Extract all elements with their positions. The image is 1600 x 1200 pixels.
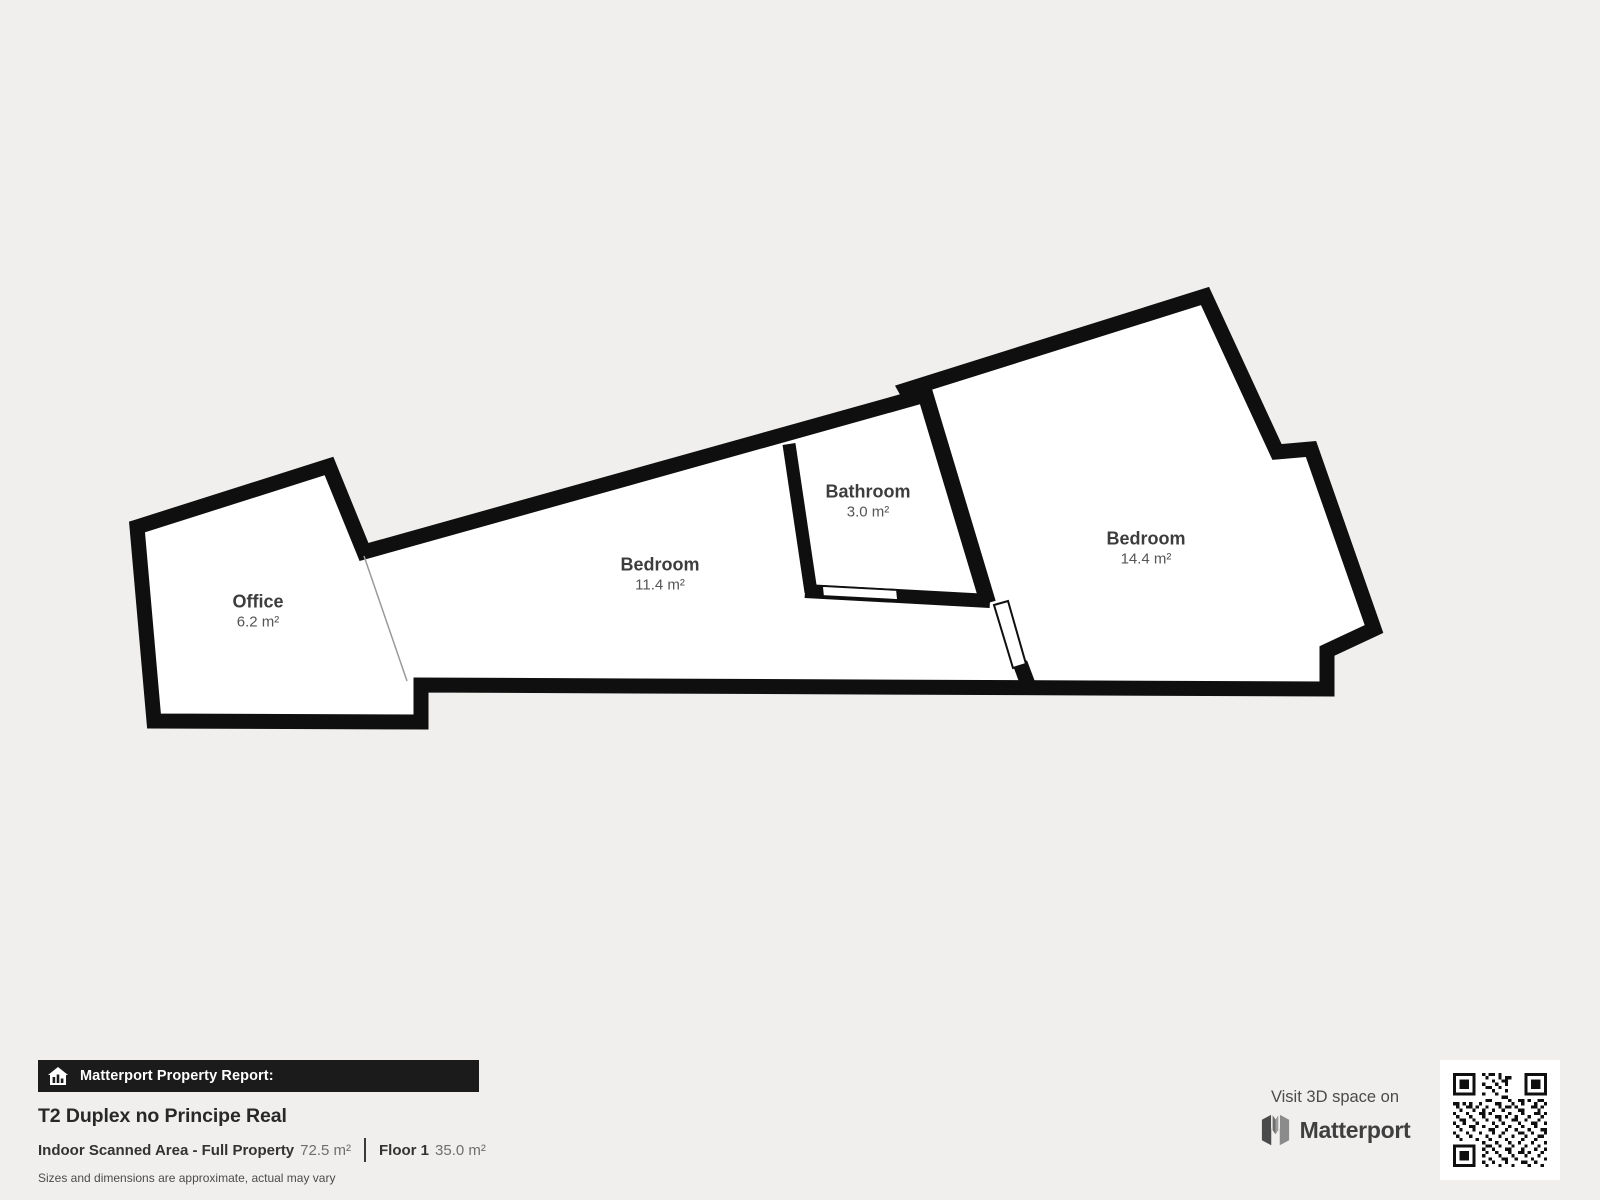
room-label-bedroom-1: Bedroom 11.4 m² [620,553,699,594]
meta-divider [364,1138,366,1162]
report-banner-title: Matterport Property Report: [80,1068,274,1084]
room-name: Bedroom [620,553,699,576]
visit-3d-text: Visit 3D space on [1235,1088,1435,1107]
divider-wall-stub [1020,663,1029,687]
floor-label: Floor 1 [379,1142,429,1159]
house-chart-icon [48,1067,68,1085]
room-name: Bedroom [1106,527,1185,550]
apartment-outline [137,296,1374,722]
room-area: 6.2 m² [232,613,283,632]
room-label-bedroom-2: Bedroom 14.4 m² [1106,527,1185,568]
matterport-m-icon [1260,1113,1291,1147]
scanned-area-value: 72.5 m² [300,1142,351,1159]
report-meta-row: Indoor Scanned Area - Full Property 72.5… [38,1138,498,1162]
room-name: Bathroom [826,480,911,503]
matterport-promo: Visit 3D space on Matterport [1235,1088,1435,1147]
matterport-logo: Matterport [1235,1113,1435,1147]
disclaimer-text: Sizes and dimensions are approximate, ac… [38,1171,498,1185]
property-title: T2 Duplex no Principe Real [38,1105,498,1128]
room-label-office: Office 6.2 m² [232,590,283,631]
room-area: 14.4 m² [1106,550,1185,569]
report-banner: Matterport Property Report: [38,1060,479,1092]
scanned-area-label: Indoor Scanned Area - Full Property [38,1142,294,1159]
floor-value: 35.0 m² [435,1142,486,1159]
room-area: 11.4 m² [620,576,699,595]
qr-code [1453,1073,1547,1167]
room-label-bathroom: Bathroom 3.0 m² [826,480,911,521]
matterport-wordmark: Matterport [1300,1117,1411,1144]
qr-code-panel [1440,1060,1560,1180]
room-name: Office [232,590,283,613]
room-area: 3.0 m² [826,503,911,522]
property-report-block: Matterport Property Report: T2 Duplex no… [38,1060,498,1185]
